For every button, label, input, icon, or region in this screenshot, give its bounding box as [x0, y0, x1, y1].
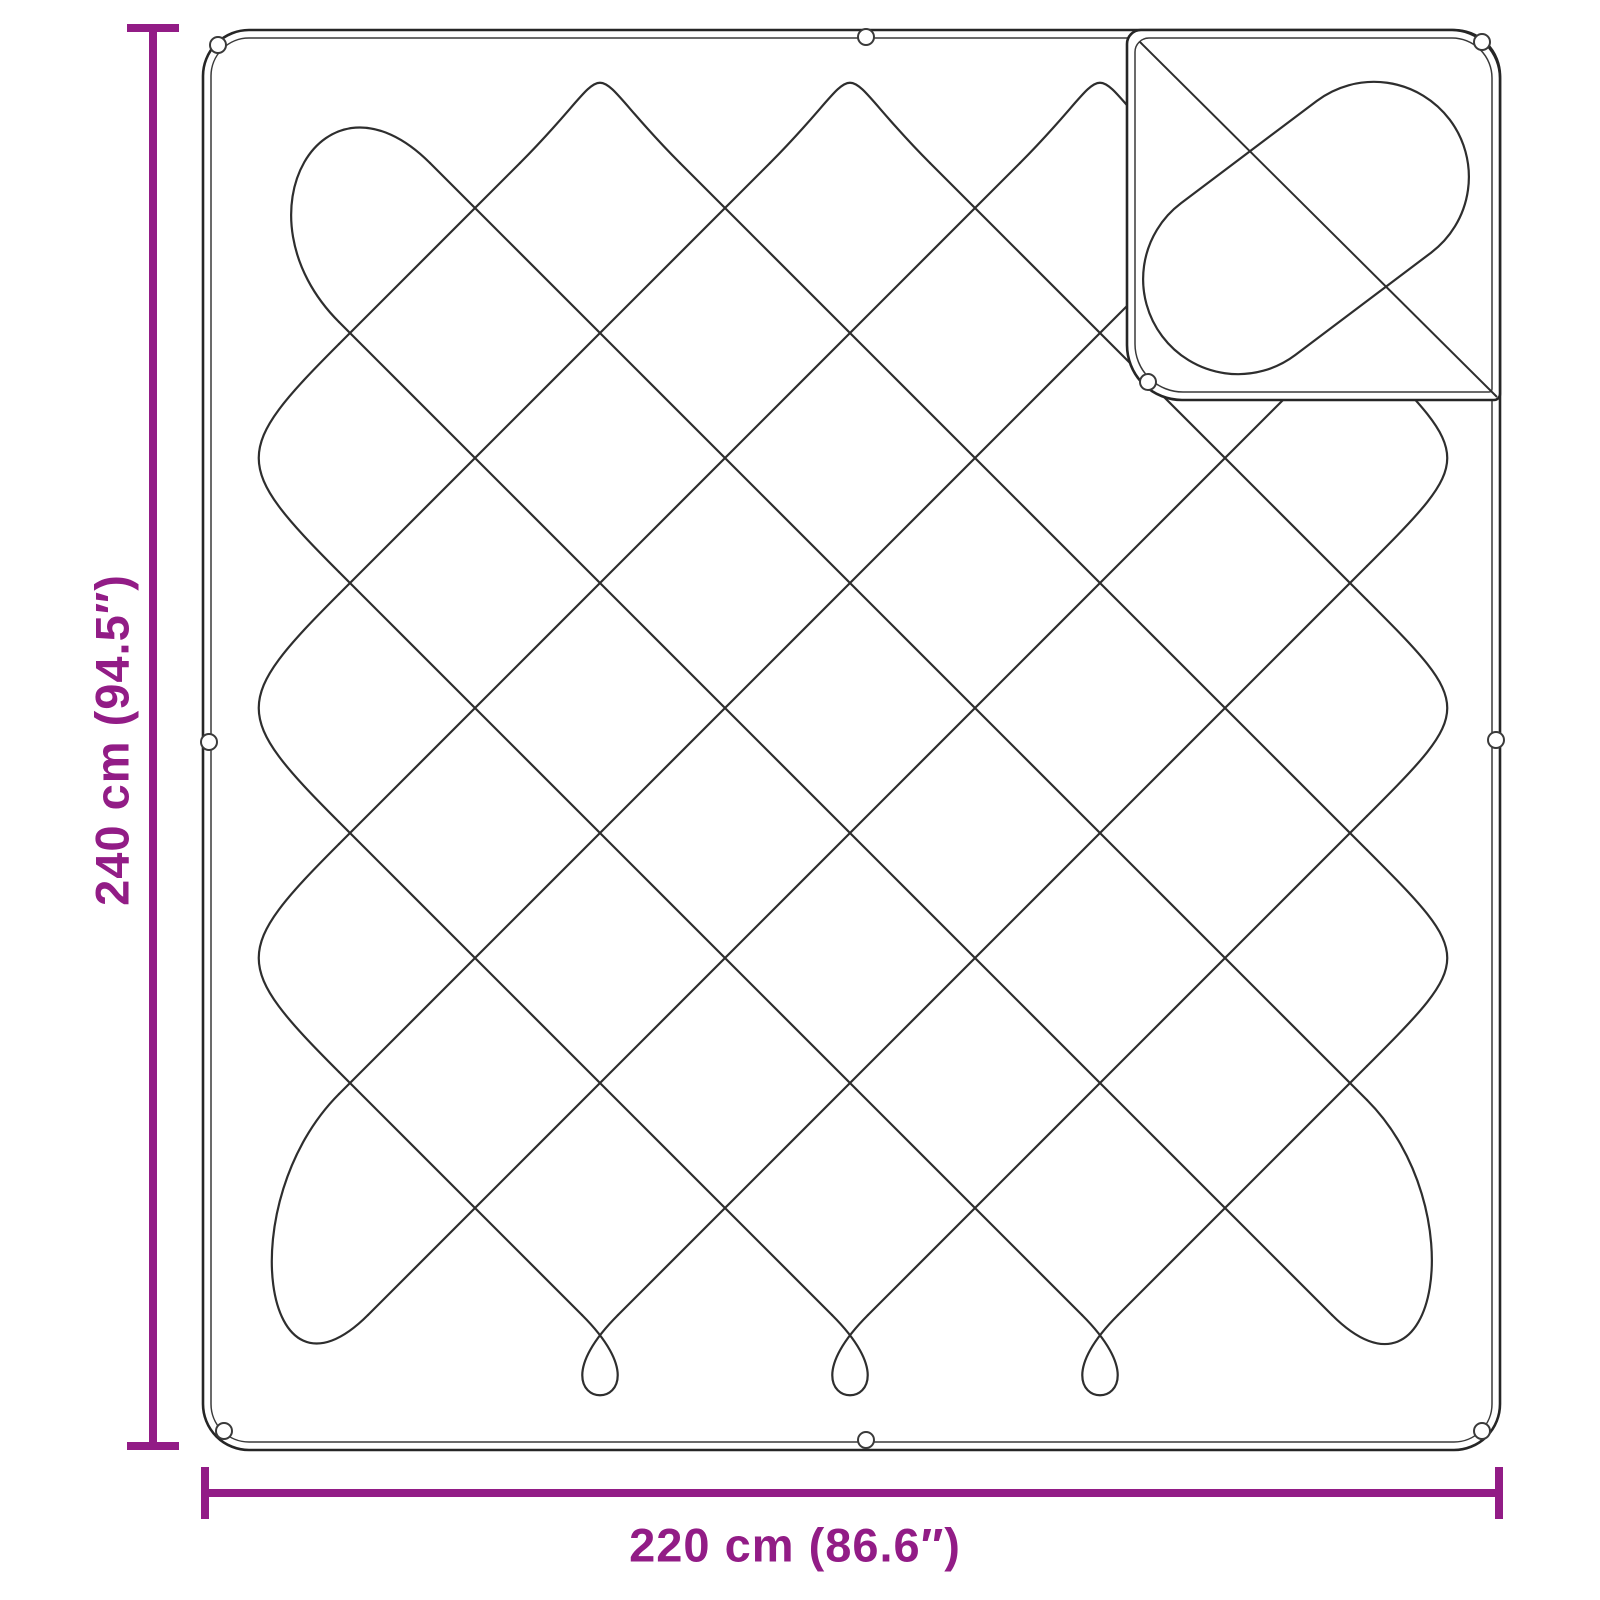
width-dimension-cap-left: [201, 1467, 209, 1519]
snap-button-bottom-middle: [858, 1432, 874, 1448]
width-dimension-label: 220 cm (86.6″): [629, 1518, 961, 1571]
snap-button-bottom-right: [1474, 1423, 1490, 1439]
height-dimension-label: 240 cm (94.5″): [85, 574, 138, 906]
snap-button-bottom-left: [216, 1423, 232, 1439]
snap-button-flap-corner: [1140, 374, 1156, 390]
corner-flap: [1105, 30, 1507, 412]
height-dimension: 240 cm (94.5″): [85, 24, 179, 1450]
height-dimension-cap-top: [127, 24, 179, 32]
width-dimension-line: [205, 1489, 1500, 1497]
height-dimension-line: [149, 28, 157, 1446]
snap-button-right-middle: [1488, 732, 1504, 748]
width-dimension: 220 cm (86.6″): [201, 1467, 1503, 1571]
snap-button-left-middle: [201, 734, 217, 750]
dimension-diagram: 240 cm (94.5″) 220 cm (86.6″): [0, 0, 1600, 1600]
blanket-dimension-drawing: 240 cm (94.5″) 220 cm (86.6″): [0, 0, 1600, 1600]
snap-button-top-left: [210, 37, 226, 53]
height-dimension-cap-bottom: [127, 1442, 179, 1450]
width-dimension-cap-right: [1495, 1467, 1503, 1519]
snap-button-top-right: [1474, 34, 1490, 50]
snap-button-top-middle: [858, 29, 874, 45]
